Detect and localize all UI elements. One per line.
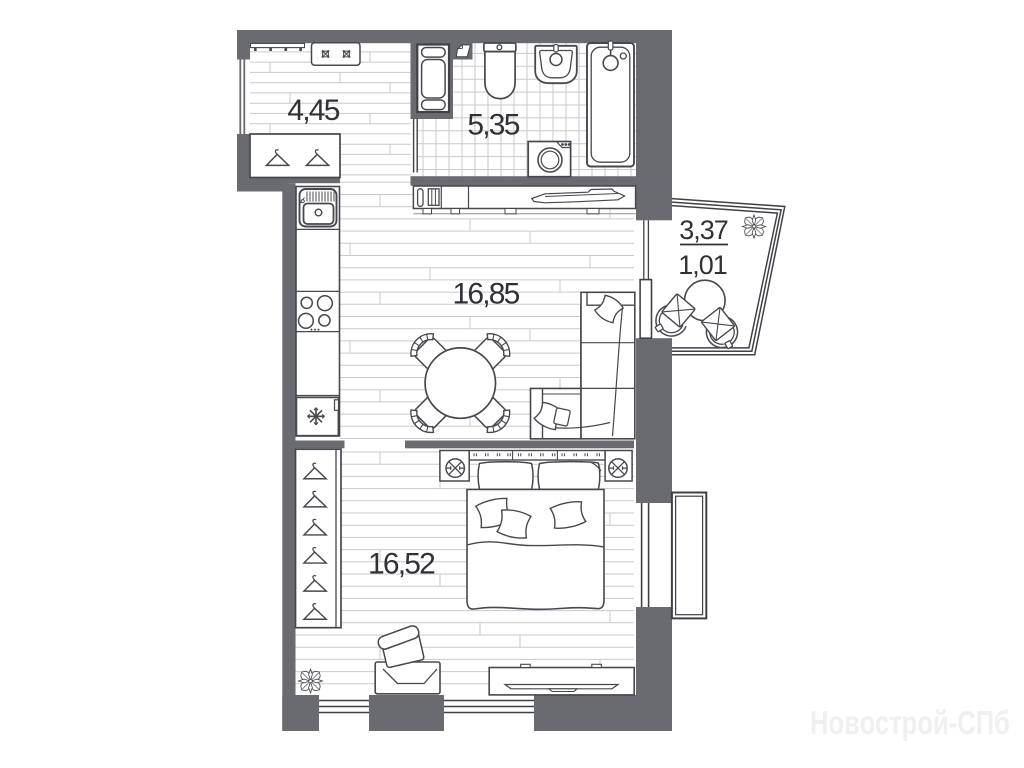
svg-text:3,37: 3,37: [679, 215, 728, 245]
svg-text:1,01: 1,01: [678, 250, 727, 280]
svg-text:Новострой-СПб: Новострой-СПб: [810, 704, 1010, 741]
svg-text:5,35: 5,35: [467, 109, 519, 142]
svg-text:16,52: 16,52: [368, 548, 435, 581]
svg-text:4,45: 4,45: [287, 94, 339, 127]
svg-text:16,85: 16,85: [452, 278, 519, 311]
